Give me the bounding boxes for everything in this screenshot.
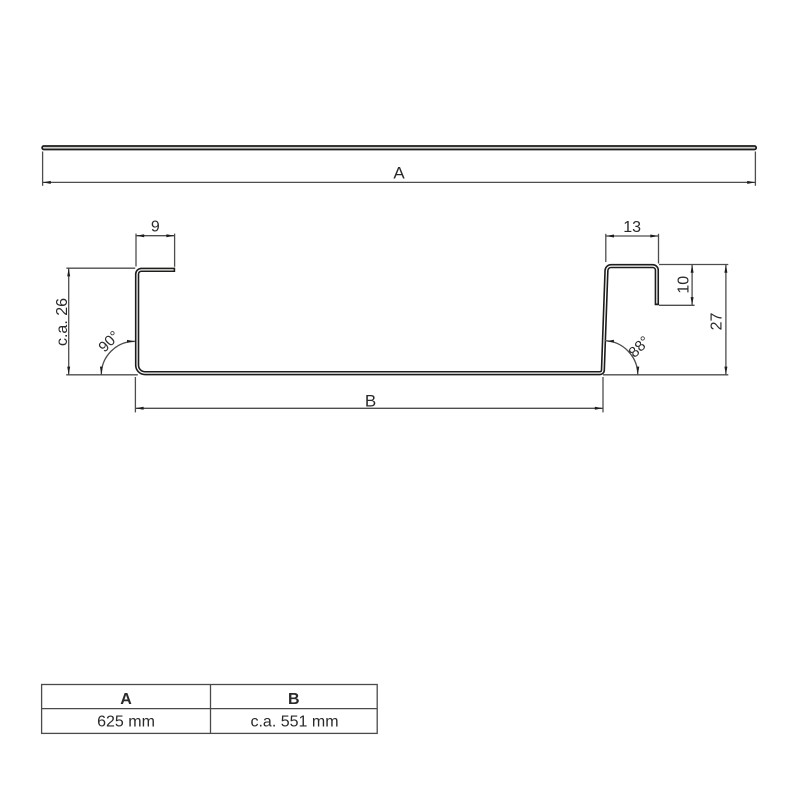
svg-text:9: 9 — [151, 219, 160, 236]
svg-text:88°: 88° — [625, 333, 653, 361]
svg-text:625 mm: 625 mm — [97, 713, 155, 730]
svg-text:10: 10 — [675, 276, 692, 294]
svg-text:c.a. 551 mm: c.a. 551 mm — [250, 713, 338, 730]
svg-text:A: A — [120, 691, 132, 708]
svg-text:27: 27 — [709, 313, 726, 331]
svg-text:c.a. 26: c.a. 26 — [54, 298, 71, 346]
svg-text:B: B — [288, 691, 300, 708]
svg-text:90°: 90° — [95, 328, 123, 356]
svg-text:A: A — [393, 163, 405, 182]
svg-text:B: B — [365, 391, 376, 410]
svg-text:13: 13 — [623, 219, 641, 236]
